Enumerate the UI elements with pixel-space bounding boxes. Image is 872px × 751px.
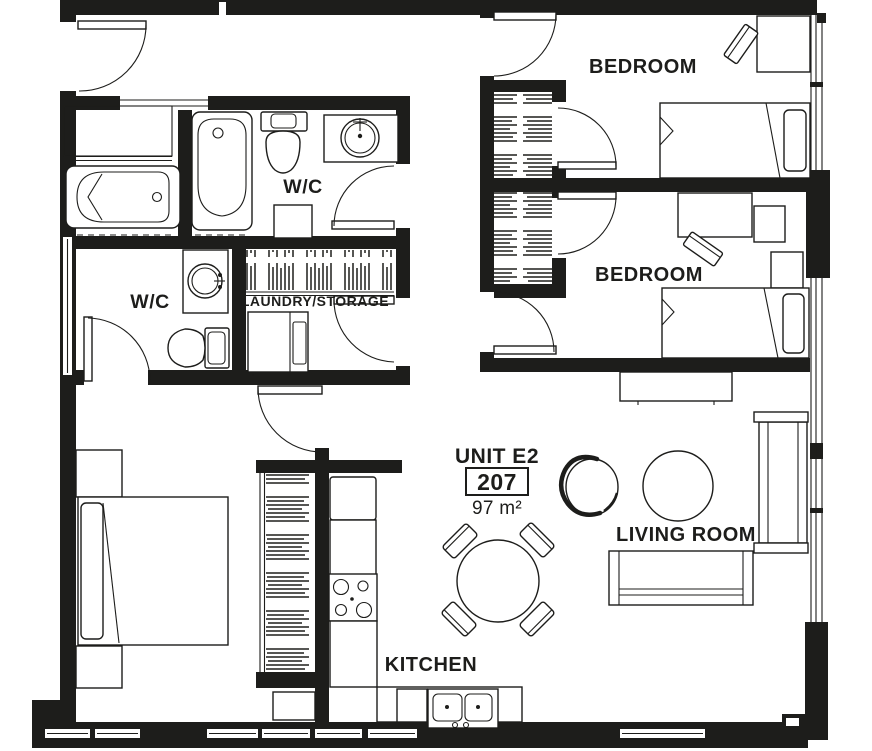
- unit-name: UNIT E2: [455, 445, 539, 468]
- living-room-label: LIVING ROOM: [616, 524, 756, 546]
- desk2: [678, 193, 752, 237]
- bedroom-middle-label: BEDROOM: [595, 264, 703, 286]
- dining-chair-sw: [441, 601, 477, 637]
- dishwasher: [397, 689, 427, 722]
- bedroom-closet-hatch: [266, 473, 315, 672]
- laundry-label: LAUNDRY/STORAGE: [241, 293, 389, 309]
- sofa-right: [754, 412, 808, 553]
- wc-top-door-swing: [334, 166, 394, 226]
- unit-label: UNIT E2 207 97 m²: [455, 445, 539, 519]
- unit-number: 207: [477, 469, 517, 495]
- bathroom-left: [64, 106, 180, 235]
- toilet-lower: [168, 328, 229, 368]
- kitchen-sink: [428, 689, 498, 728]
- round-table: [643, 451, 713, 521]
- bedroom-closet: [260, 473, 315, 672]
- wc-top-label: W/C: [283, 176, 322, 198]
- cabinet-small: [274, 205, 312, 238]
- floor-plan-canvas: W/C W/C LAUNDRY/: [0, 0, 872, 751]
- washer: [248, 312, 308, 375]
- wc-lower-label: W/C: [130, 291, 169, 313]
- bedroom-top-door-swing: [494, 14, 556, 76]
- unit-area: 97 m²: [472, 498, 522, 519]
- living-room: LIVING ROOM: [561, 372, 808, 605]
- dining-set: [441, 522, 555, 637]
- bed: [660, 103, 810, 178]
- window-right-upper: [811, 15, 822, 170]
- laundry-door-swing: [334, 300, 394, 362]
- wc-top: W/C: [192, 112, 398, 238]
- bedroom-top-door-leaf: [494, 12, 556, 20]
- entry-door-swing: [79, 25, 146, 91]
- bed3: [78, 497, 228, 645]
- nightstand2a: [754, 206, 785, 242]
- wall-under-baths: [60, 236, 410, 249]
- sofa-bottom: [609, 551, 753, 605]
- bedroom-bottom-door-swing: [258, 388, 322, 452]
- sink-lower: [183, 250, 228, 313]
- closet2-hatch: [494, 192, 552, 284]
- floor-plan: W/C W/C LAUNDRY/: [0, 0, 872, 751]
- entry-door-leaf: [78, 21, 146, 29]
- desk-chair: [724, 24, 759, 64]
- bedroom-top-label: BEDROOM: [589, 56, 697, 78]
- closet2-door-leaf: [558, 192, 616, 199]
- armchair: [561, 457, 618, 515]
- wall-top: [60, 0, 817, 15]
- wall-closet3-bottom: [256, 672, 329, 688]
- tv-stand: [620, 372, 732, 401]
- stove: [329, 574, 377, 621]
- bathtub-horizontal: [66, 166, 180, 228]
- wc-top-door-leaf: [332, 221, 394, 229]
- sink-top: [324, 115, 398, 162]
- wall-bedroom2-living: [486, 358, 810, 372]
- closet-hatch: [64, 106, 172, 156]
- cabinet2: [771, 252, 803, 288]
- kitchen-cabinet: [330, 520, 376, 575]
- closet2-bottom: [486, 284, 566, 298]
- closet1-door-swing: [558, 108, 616, 166]
- bedroom-middle-door-leaf: [494, 346, 556, 354]
- laundry-closet-hatch: [246, 250, 394, 290]
- wall-bottom-right-pier: [805, 622, 828, 740]
- dining-table: [457, 540, 539, 622]
- wall-pier-right: [806, 170, 830, 278]
- bedroom-bottom: [76, 386, 322, 720]
- closet2-door-swing: [558, 196, 616, 254]
- wall-wc-laundry: [232, 249, 246, 370]
- fridge: [330, 477, 376, 520]
- shoe-cabinet: [273, 692, 315, 720]
- bathtub-vertical: [192, 112, 252, 230]
- entry: [78, 21, 146, 91]
- kitchen-label: KITCHEN: [385, 654, 477, 676]
- toilet-top: [261, 112, 307, 173]
- nightstand3a: [76, 450, 122, 497]
- bedroom-middle-door-swing: [494, 292, 554, 352]
- dining-chair-se: [519, 601, 555, 637]
- wall-under-hall: [60, 96, 410, 110]
- dining-chair-ne: [519, 522, 555, 558]
- bedroom-bottom-door-leaf: [258, 386, 322, 394]
- counter-column: [330, 621, 377, 687]
- nightstand3b: [76, 646, 122, 688]
- bed2: [662, 288, 809, 358]
- wall-bottom-left-corner: [32, 700, 76, 724]
- dining-chair-nw: [442, 523, 478, 559]
- wc-lower: W/C: [84, 250, 229, 381]
- wall-bedroom-divider: [486, 178, 808, 192]
- closet1-door-leaf: [558, 162, 616, 169]
- laundry: LAUNDRY/STORAGE: [241, 250, 394, 375]
- wc-lower-door-leaf: [84, 317, 92, 381]
- closet1-hatch: [494, 92, 552, 178]
- desk: [757, 16, 810, 72]
